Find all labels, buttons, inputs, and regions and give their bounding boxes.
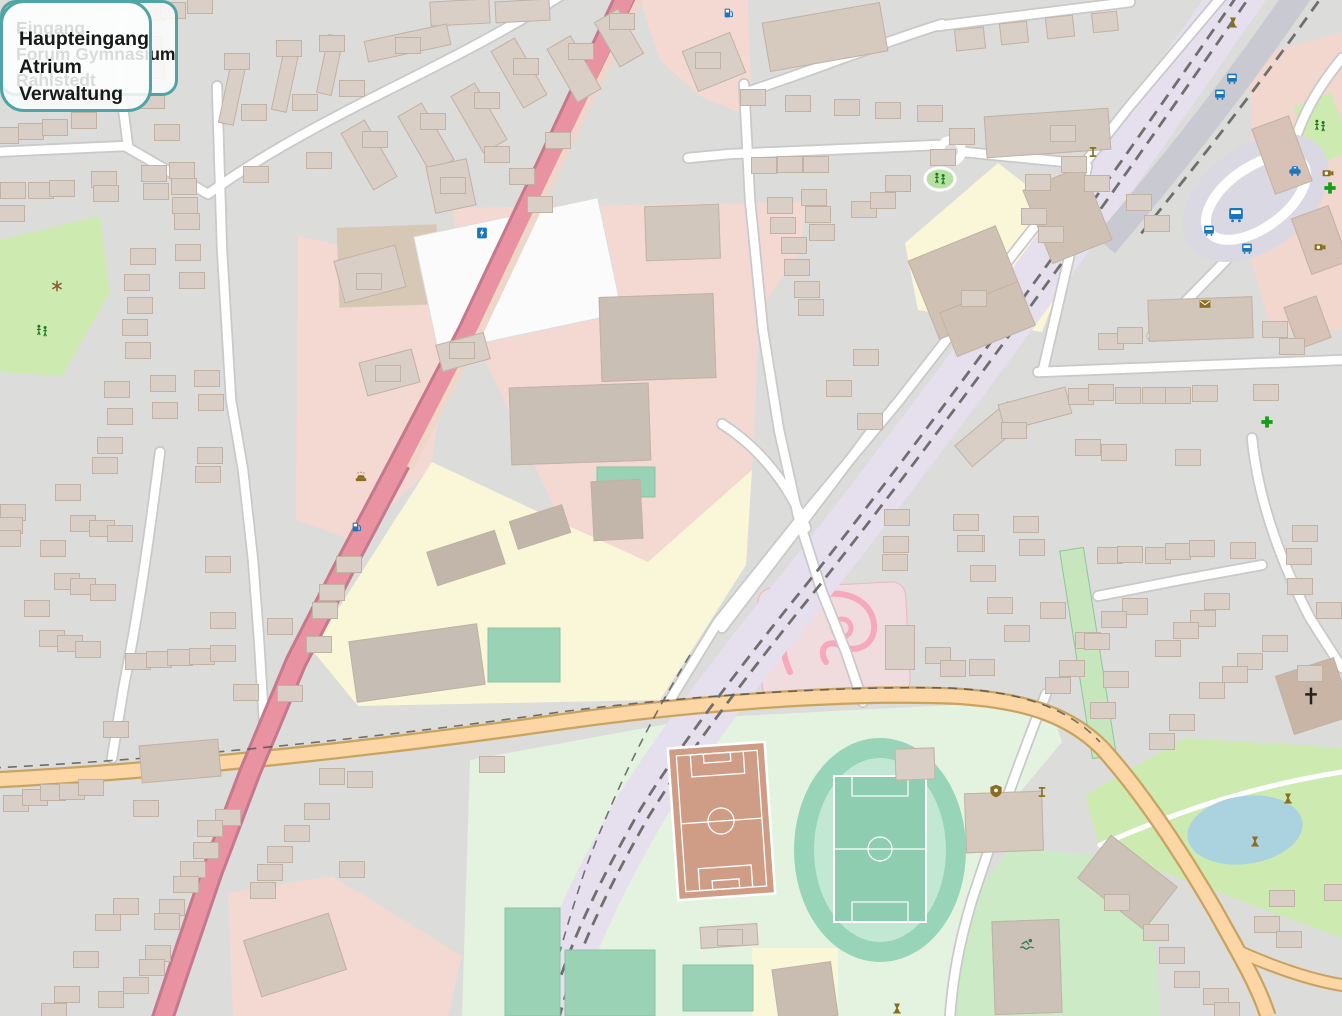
bus-icon xyxy=(1214,88,1227,101)
building xyxy=(194,370,220,387)
building xyxy=(1155,640,1181,657)
building xyxy=(894,747,935,780)
building xyxy=(961,290,987,307)
building xyxy=(1143,924,1169,941)
building xyxy=(1279,338,1305,355)
pharmacy-icon xyxy=(1323,181,1338,196)
building xyxy=(1019,539,1045,556)
gate-icon xyxy=(1087,146,1100,159)
building xyxy=(717,929,743,946)
building xyxy=(171,178,197,195)
charging-icon xyxy=(476,227,489,240)
building xyxy=(885,175,911,192)
monument-icon xyxy=(1282,792,1294,804)
gate-icon xyxy=(1036,786,1049,799)
building xyxy=(210,645,236,662)
building xyxy=(479,756,505,773)
building xyxy=(143,183,169,200)
building xyxy=(193,842,219,859)
building xyxy=(41,1003,67,1016)
building xyxy=(42,119,68,136)
building xyxy=(771,961,838,1016)
building xyxy=(1021,208,1047,225)
building xyxy=(953,514,979,531)
building xyxy=(292,94,318,111)
building xyxy=(420,113,446,130)
monument-icon xyxy=(1227,16,1239,28)
building xyxy=(1204,593,1230,610)
building xyxy=(930,149,956,166)
building xyxy=(319,35,345,52)
building xyxy=(78,779,104,796)
building xyxy=(154,913,180,930)
building xyxy=(987,597,1013,614)
building xyxy=(107,408,133,425)
building xyxy=(449,342,475,359)
building xyxy=(241,104,267,121)
bus-icon xyxy=(1227,205,1245,223)
building xyxy=(1103,671,1129,688)
building xyxy=(545,132,571,149)
building xyxy=(0,127,19,144)
building xyxy=(130,248,156,265)
building xyxy=(882,554,908,571)
building xyxy=(172,197,198,214)
building xyxy=(940,660,966,677)
fuel-icon xyxy=(723,7,736,20)
building xyxy=(197,447,223,464)
taxi-icon xyxy=(1288,163,1303,178)
building xyxy=(917,105,943,122)
building xyxy=(1292,525,1318,542)
building xyxy=(474,92,500,109)
building xyxy=(767,197,793,214)
building xyxy=(1159,947,1185,964)
building xyxy=(884,509,910,526)
building xyxy=(1004,625,1030,642)
playground-icon xyxy=(1313,118,1328,133)
building xyxy=(1117,327,1143,344)
building xyxy=(319,584,345,601)
building xyxy=(1075,439,1101,456)
building xyxy=(1144,215,1170,232)
building xyxy=(152,402,178,419)
building xyxy=(267,618,293,635)
building xyxy=(805,206,831,223)
building xyxy=(250,882,276,899)
building xyxy=(590,479,643,542)
building xyxy=(150,375,176,392)
building xyxy=(1059,660,1085,677)
carwash-icon xyxy=(354,470,368,484)
building xyxy=(885,625,915,670)
callout-line: Haupteingang xyxy=(19,26,149,54)
building xyxy=(1316,602,1342,619)
building xyxy=(92,457,118,474)
building xyxy=(257,864,283,881)
building xyxy=(174,213,200,230)
building xyxy=(198,394,224,411)
building xyxy=(1126,194,1152,211)
building xyxy=(1084,175,1110,192)
building xyxy=(1045,677,1071,694)
building xyxy=(1038,226,1064,243)
building xyxy=(197,820,223,837)
building xyxy=(141,165,167,182)
building xyxy=(224,53,250,70)
building xyxy=(954,26,986,51)
building xyxy=(125,342,151,359)
building xyxy=(949,128,975,145)
building xyxy=(1269,890,1295,907)
building xyxy=(169,162,195,179)
building xyxy=(826,380,852,397)
building xyxy=(1262,321,1288,338)
building xyxy=(127,297,153,314)
building xyxy=(306,152,332,169)
building xyxy=(1061,156,1087,173)
building xyxy=(1287,578,1313,595)
building xyxy=(1276,931,1302,948)
building xyxy=(509,168,535,185)
building xyxy=(957,535,983,552)
building xyxy=(107,525,133,542)
building xyxy=(784,259,810,276)
pharmacy-icon xyxy=(1260,415,1275,430)
building xyxy=(49,180,75,197)
building xyxy=(356,273,382,290)
building xyxy=(777,156,803,173)
building xyxy=(277,685,303,702)
building xyxy=(122,319,148,336)
building xyxy=(785,95,811,112)
building xyxy=(336,556,362,573)
building xyxy=(154,124,180,141)
viewpoint-icon xyxy=(50,279,64,293)
mail-icon xyxy=(1199,298,1212,311)
building xyxy=(494,0,550,23)
building xyxy=(609,13,635,30)
building xyxy=(834,99,860,116)
building xyxy=(853,349,879,366)
building xyxy=(205,556,231,573)
building xyxy=(362,131,388,148)
police-icon xyxy=(989,784,1004,799)
building xyxy=(90,584,116,601)
building xyxy=(527,196,553,213)
monument-icon xyxy=(891,1002,903,1014)
building xyxy=(233,684,259,701)
building xyxy=(395,37,421,54)
building xyxy=(1189,540,1215,557)
building xyxy=(1230,542,1256,559)
building xyxy=(798,299,824,316)
building xyxy=(1214,1002,1240,1016)
bus-icon xyxy=(1226,72,1239,85)
building xyxy=(1192,385,1218,402)
building xyxy=(770,217,796,234)
building xyxy=(173,876,199,893)
building xyxy=(347,771,373,788)
building xyxy=(794,281,820,298)
building xyxy=(781,237,807,254)
camera-icon xyxy=(1322,167,1335,180)
building xyxy=(1050,125,1076,142)
building xyxy=(1165,387,1191,404)
building xyxy=(0,182,26,199)
building xyxy=(440,177,466,194)
building xyxy=(375,365,401,382)
building xyxy=(339,80,365,97)
building xyxy=(139,959,165,976)
playground-icon xyxy=(933,171,948,186)
building xyxy=(1025,174,1051,191)
building xyxy=(1084,633,1110,650)
building xyxy=(24,600,50,617)
building xyxy=(276,40,302,57)
building xyxy=(319,768,345,785)
building xyxy=(991,919,1062,1015)
playground-icon xyxy=(35,323,50,338)
fuel-icon xyxy=(351,521,364,534)
building xyxy=(1091,11,1119,34)
building xyxy=(1297,665,1323,682)
building xyxy=(113,898,139,915)
building xyxy=(509,383,652,466)
building xyxy=(71,112,97,129)
building xyxy=(97,437,123,454)
building xyxy=(1222,666,1248,683)
building xyxy=(267,846,293,863)
building xyxy=(95,914,121,931)
building xyxy=(1174,971,1200,988)
building xyxy=(969,659,995,676)
building xyxy=(1149,733,1175,750)
building xyxy=(0,530,21,547)
building xyxy=(1173,622,1199,639)
building xyxy=(1169,714,1195,731)
building xyxy=(312,602,338,619)
building xyxy=(740,89,766,106)
building xyxy=(568,43,594,60)
building xyxy=(857,413,883,430)
building xyxy=(513,58,539,75)
building xyxy=(1040,602,1066,619)
building xyxy=(1115,387,1141,404)
callout-main-entrance-atrium: Haupteingang Atrium Verwaltung xyxy=(0,0,152,112)
callout-line: Verwaltung xyxy=(19,81,149,109)
building xyxy=(870,192,896,209)
building xyxy=(55,484,81,501)
building xyxy=(175,244,201,261)
building xyxy=(1175,449,1201,466)
building xyxy=(123,977,149,994)
church-icon xyxy=(1301,686,1321,706)
building xyxy=(1262,635,1288,652)
building xyxy=(18,123,44,140)
building xyxy=(1324,884,1342,901)
building xyxy=(103,721,129,738)
building xyxy=(1013,516,1039,533)
building xyxy=(1090,702,1116,719)
building xyxy=(104,381,130,398)
building xyxy=(803,156,829,173)
building xyxy=(133,800,159,817)
building xyxy=(210,612,236,629)
building xyxy=(304,803,330,820)
building xyxy=(1088,384,1114,401)
building xyxy=(644,204,721,262)
monument-icon xyxy=(1249,835,1261,847)
building xyxy=(124,274,150,291)
building xyxy=(964,791,1044,854)
swimmer-icon xyxy=(1019,936,1035,952)
building xyxy=(1199,682,1225,699)
building xyxy=(1165,543,1191,560)
building xyxy=(429,0,490,27)
building xyxy=(1104,894,1130,911)
building xyxy=(243,166,269,183)
building xyxy=(187,0,213,14)
building xyxy=(93,185,119,202)
building xyxy=(40,540,66,557)
building xyxy=(883,536,909,553)
building xyxy=(73,951,99,968)
building xyxy=(75,641,101,658)
building xyxy=(1045,15,1075,40)
building xyxy=(695,52,721,69)
callout-line: Atrium xyxy=(19,54,149,82)
building xyxy=(875,102,901,119)
building xyxy=(1101,444,1127,461)
building xyxy=(306,636,332,653)
building xyxy=(179,272,205,289)
building xyxy=(751,157,777,174)
building xyxy=(809,224,835,241)
building xyxy=(1286,548,1312,565)
building xyxy=(98,991,124,1008)
building xyxy=(138,739,221,784)
building xyxy=(484,146,510,163)
bus-icon xyxy=(1241,242,1254,255)
building xyxy=(970,565,996,582)
building xyxy=(1253,384,1279,401)
bus-icon xyxy=(1203,224,1216,237)
building xyxy=(54,986,80,1003)
building xyxy=(1101,611,1127,628)
map-canvas[interactable]: Eingang Forum Gymnasium Rahlstedt Haupte… xyxy=(0,0,1342,1016)
building xyxy=(1117,546,1143,563)
building xyxy=(599,293,717,382)
building xyxy=(1001,422,1027,439)
building xyxy=(195,466,221,483)
building xyxy=(999,21,1029,46)
camera-icon xyxy=(1314,241,1327,254)
building xyxy=(284,825,310,842)
building xyxy=(0,205,25,222)
building xyxy=(339,861,365,878)
building xyxy=(801,189,827,206)
